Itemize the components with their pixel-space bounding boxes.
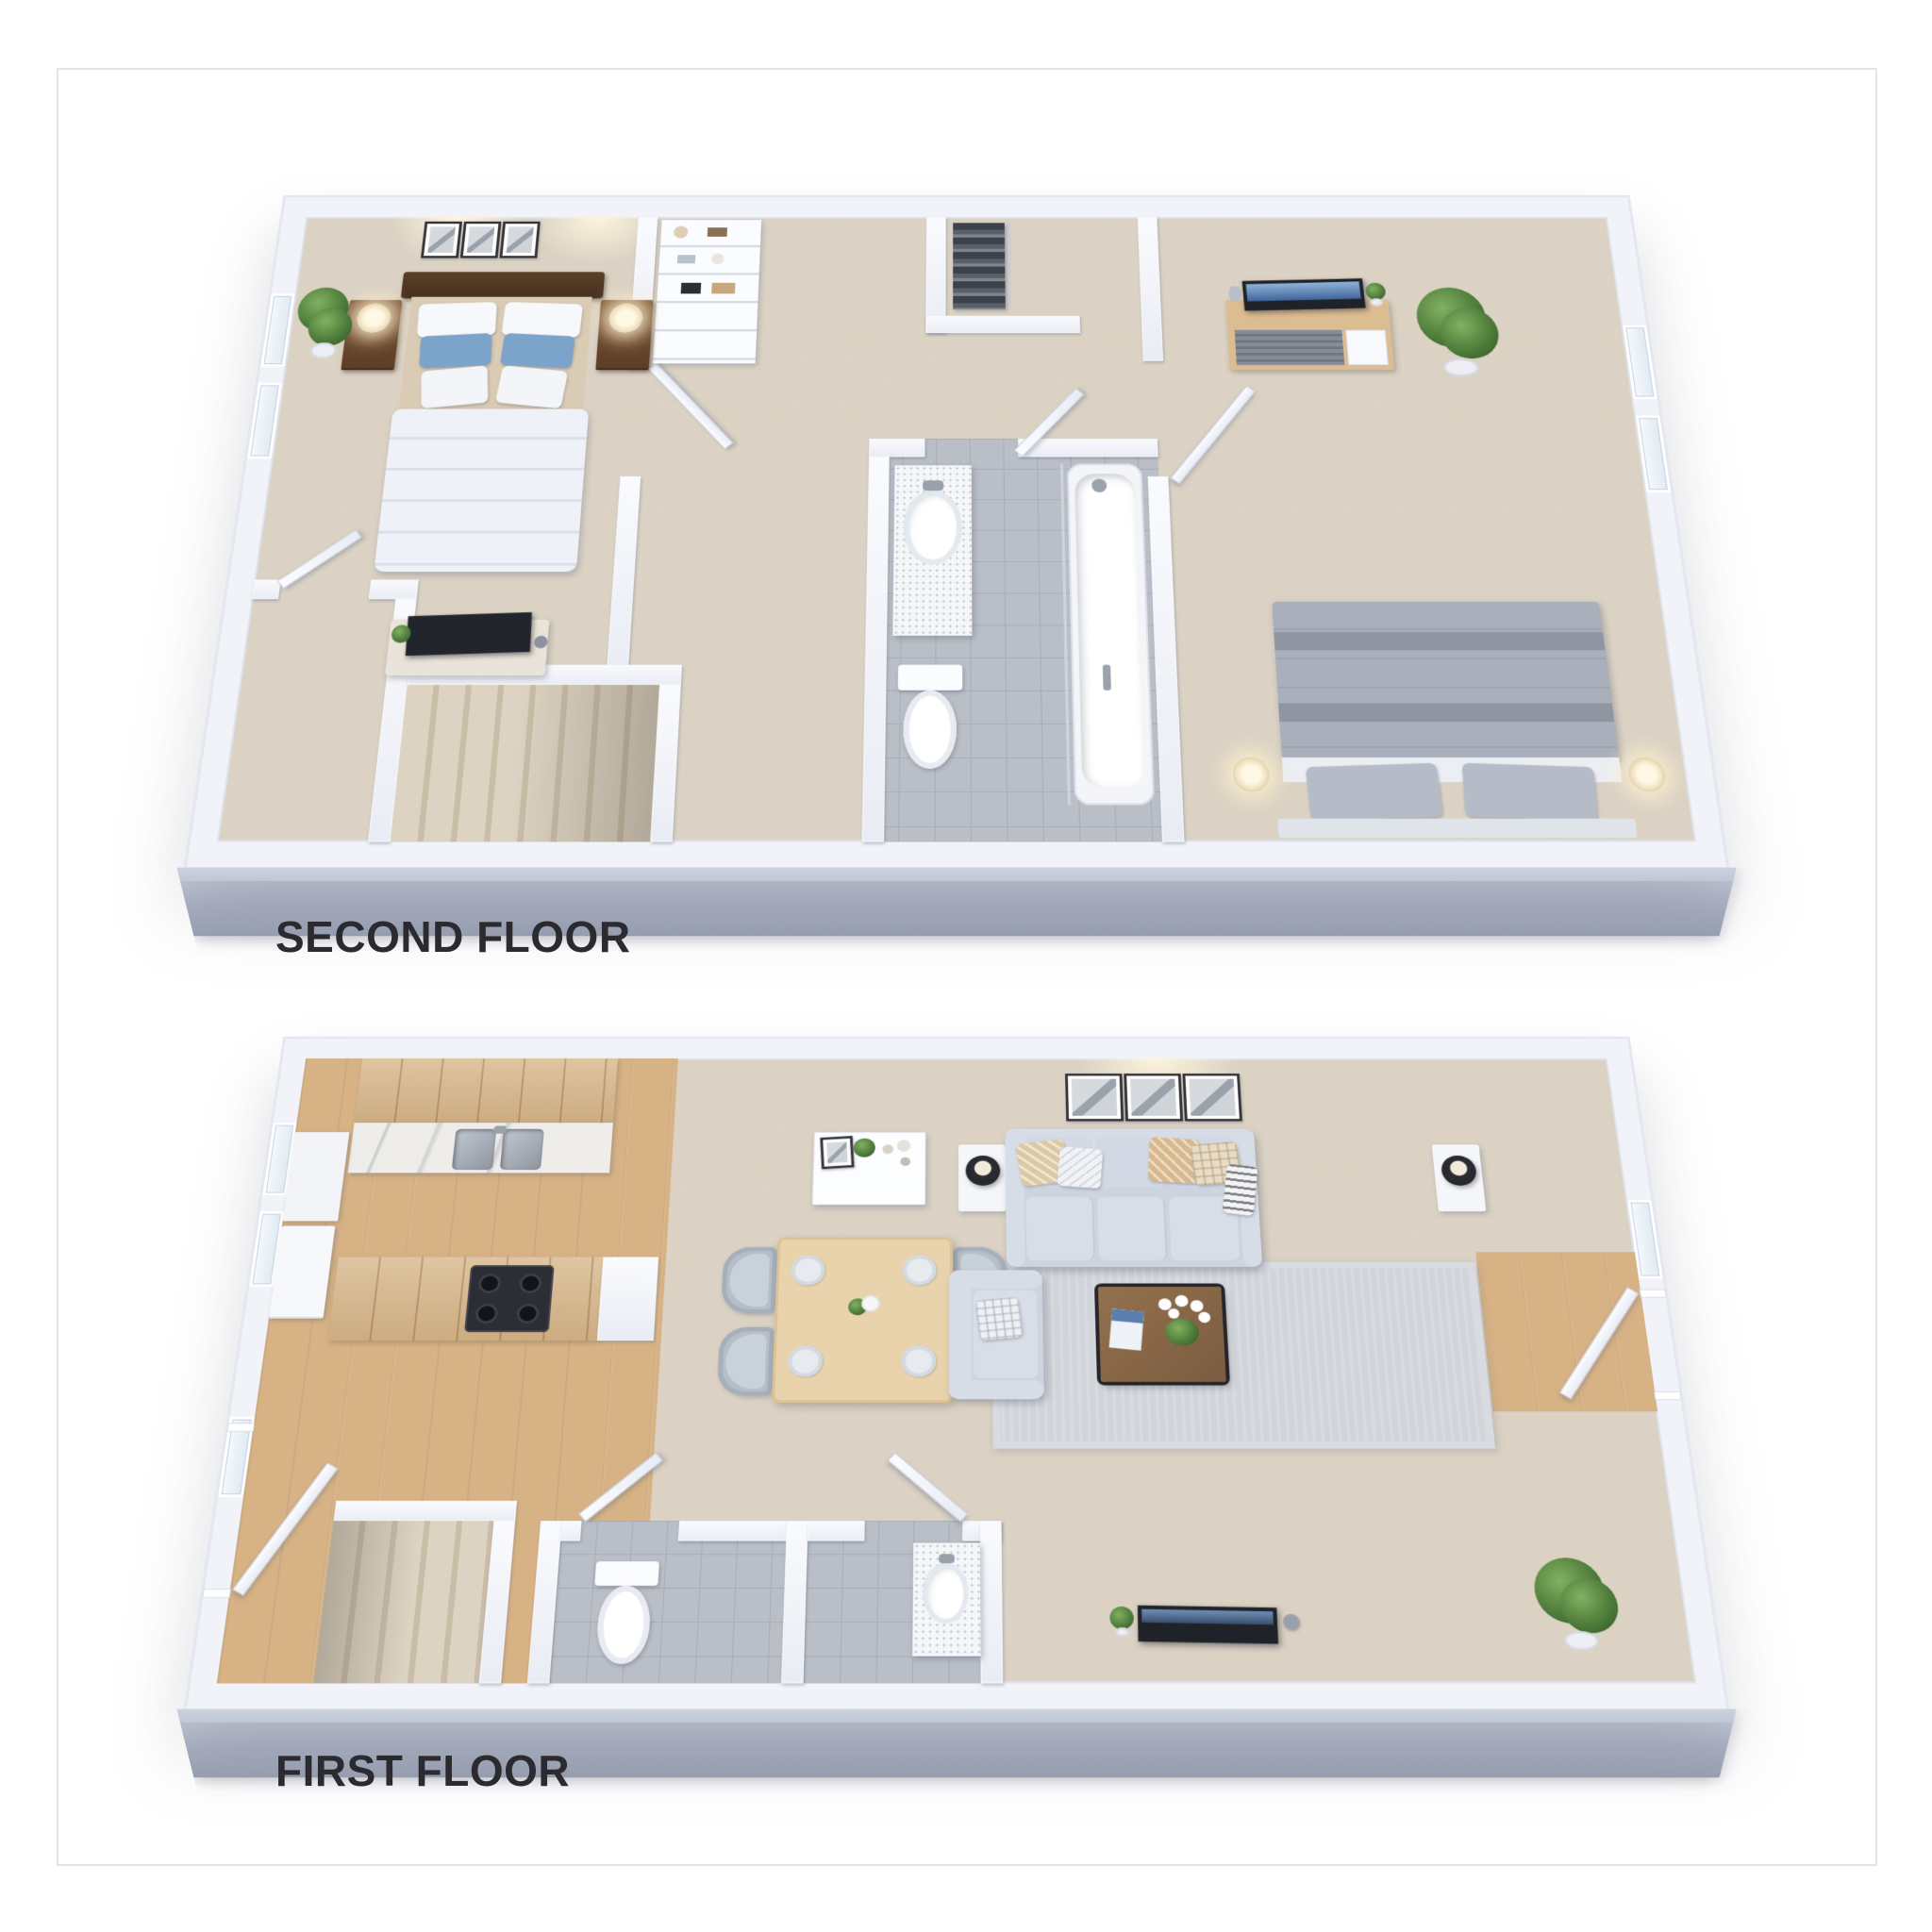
decor-books	[677, 255, 695, 263]
door-jamb	[1655, 1392, 1680, 1399]
bedroom2-door	[1171, 386, 1256, 485]
plant-foliage	[1557, 1578, 1621, 1633]
vanity-sink	[923, 1563, 969, 1624]
closet-wall	[368, 599, 417, 841]
wall-art-content	[427, 226, 456, 252]
upper-cabinets	[354, 1058, 618, 1123]
floor-plan-image: SECOND FLOOR	[0, 0, 1932, 1932]
decor-vase	[882, 1144, 893, 1154]
island-return-wall	[597, 1257, 658, 1341]
speaker	[534, 636, 548, 648]
bedroom2-wall	[1148, 476, 1185, 842]
sink-faucet	[923, 480, 943, 491]
burner	[516, 1304, 541, 1324]
armchair-arm	[949, 1270, 1042, 1288]
plant-pot	[1563, 1631, 1600, 1650]
bed-cushion-white	[495, 365, 568, 408]
bed-cushion-white	[421, 365, 488, 408]
staircase-up	[313, 1521, 493, 1683]
wall-art-figure	[499, 222, 540, 258]
bathroom-vanity	[892, 465, 972, 636]
window	[1636, 415, 1672, 491]
decor-vase	[900, 1158, 910, 1166]
hall-shelving-unit	[653, 220, 761, 363]
duvet-stripe	[1278, 703, 1614, 722]
bathroom-wall	[869, 439, 924, 457]
powder-room-divider-wall	[781, 1521, 808, 1683]
powder-room-wall	[527, 1521, 562, 1683]
tv-screen	[1141, 1609, 1274, 1624]
tub-drain-faucet	[1091, 479, 1107, 492]
master-bedroom-wall	[607, 476, 641, 669]
closet-wall	[369, 579, 419, 599]
burner	[475, 1304, 499, 1324]
closet-door	[277, 529, 362, 589]
magazine	[1109, 1308, 1144, 1350]
table-centerpiece	[846, 1295, 882, 1322]
bathroom-wall	[862, 457, 890, 841]
decor-plate	[711, 254, 724, 264]
bed-headboard	[401, 272, 605, 298]
bedroom2-wall	[1138, 217, 1163, 361]
stair-side-wall	[479, 1521, 516, 1683]
plant-foliage	[1438, 308, 1502, 358]
armchair	[949, 1270, 1044, 1399]
area-rug	[991, 1262, 1495, 1449]
bathroom-wall	[1018, 439, 1158, 457]
armchair-arm	[949, 1380, 1044, 1399]
dinner-plate	[902, 1346, 936, 1377]
decor-box	[708, 227, 727, 237]
wall-art	[1065, 1074, 1124, 1121]
bathtub-basin	[1074, 474, 1146, 788]
throw-pillow-striped	[1223, 1163, 1258, 1216]
wall-art-butterfly	[421, 222, 462, 258]
window	[247, 383, 282, 458]
wall-art	[1124, 1074, 1183, 1121]
tv-living-room	[1138, 1606, 1278, 1644]
second-floor-plan	[187, 197, 1726, 867]
potted-plant	[289, 284, 361, 363]
bed2-headboard	[1277, 819, 1637, 839]
sideboard	[812, 1132, 926, 1205]
toilet-tank	[898, 665, 962, 691]
wall-art-script	[460, 222, 502, 258]
staircase-down	[391, 685, 660, 842]
tv-screen	[1246, 281, 1361, 301]
vanity-sink	[903, 491, 962, 565]
closet-wall	[251, 579, 280, 599]
sideboard-plant	[854, 1139, 877, 1159]
throw-pillow	[974, 1296, 1023, 1341]
toilet-room-tile	[549, 1521, 787, 1683]
bed-pillow-white	[501, 302, 583, 338]
powder-room-wall	[962, 1521, 1002, 1541]
first-floor-plan	[187, 1039, 1726, 1708]
bed2-duvet	[1272, 602, 1619, 761]
decor-vase	[897, 1140, 911, 1151]
bedside-lamp	[1627, 758, 1668, 791]
stair-side-wall	[650, 685, 681, 842]
console-slat-drawers	[1235, 330, 1345, 365]
small-plant	[1365, 283, 1389, 308]
first-floor-tilt	[187, 1039, 1726, 1708]
kitchen-appliance-counter	[283, 1132, 350, 1221]
burner	[477, 1274, 502, 1293]
master-bedroom-door	[648, 362, 734, 449]
powder-room-wall	[980, 1521, 1003, 1683]
first-floor-label: FIRST FLOOR	[275, 1745, 570, 1796]
tall-potted-plant	[1410, 286, 1507, 378]
throw-pillow-white	[1057, 1146, 1103, 1189]
small-plant	[390, 625, 412, 650]
coffee-table	[1098, 1287, 1226, 1382]
stair-rail-wall	[408, 665, 682, 685]
sink-room-tile	[804, 1521, 1004, 1683]
toilet-tank	[594, 1561, 659, 1586]
dinner-plate	[788, 1346, 823, 1377]
door-jamb	[203, 1590, 229, 1597]
door-jamb	[227, 1424, 253, 1430]
bed2-pillow	[1462, 763, 1598, 821]
kitchen-faucet	[493, 1125, 507, 1133]
shower-glass-panel	[1060, 464, 1071, 806]
decor-basket	[711, 283, 735, 294]
double-sink	[452, 1129, 544, 1170]
decor-vase	[1228, 286, 1241, 302]
entry-door	[232, 1462, 339, 1596]
door-jamb	[1641, 1291, 1666, 1297]
bed2-pillow	[1306, 763, 1443, 821]
speaker	[1283, 1614, 1300, 1629]
kitchen-island	[327, 1257, 603, 1341]
dining-table	[772, 1238, 953, 1403]
entry-wood-floor	[1476, 1252, 1658, 1411]
sink-bowl	[500, 1129, 544, 1170]
bathtub	[1067, 464, 1155, 806]
tv-plant	[1109, 1607, 1137, 1641]
second-floor-tilt	[187, 197, 1726, 867]
powder-room-wall	[560, 1521, 581, 1541]
sink-room-door	[888, 1453, 969, 1523]
dinner-plate	[791, 1256, 824, 1286]
decor-box-dark	[681, 283, 702, 294]
dinner-plate	[903, 1256, 937, 1286]
staircase-shading	[313, 1521, 493, 1683]
bed-pillow-blue	[419, 333, 491, 368]
bed-duvet	[374, 408, 589, 572]
tv-dresser	[385, 620, 549, 675]
console-door	[1345, 330, 1389, 365]
toilet-bowl	[903, 691, 957, 769]
closet-rail	[1008, 223, 1012, 309]
powder-room-wall	[678, 1521, 787, 1541]
cooktop	[464, 1265, 555, 1332]
bedside-lamp	[1232, 758, 1270, 791]
hanging-clothes	[953, 223, 1006, 309]
stair-rail-wall	[334, 1501, 517, 1521]
powder-room-wall	[808, 1521, 865, 1541]
sofa-seat-cushion	[1097, 1197, 1168, 1260]
second-floor-label: SECOND FLOOR	[275, 911, 631, 962]
dining-chair	[717, 1327, 774, 1396]
kitchen-counter	[348, 1123, 613, 1173]
first-floor-scene	[240, 983, 1674, 1832]
sofa	[1006, 1129, 1263, 1267]
wall-art-content	[507, 226, 534, 252]
bed2-sheet	[1282, 758, 1623, 782]
bed-pillow-white	[417, 302, 497, 338]
powder-vanity	[912, 1543, 980, 1657]
duvet-stripe	[1274, 632, 1605, 650]
plant-pot	[1442, 358, 1479, 376]
plant-pot	[309, 342, 337, 358]
second-floor-scene	[240, 142, 1674, 991]
staircase-shading	[391, 685, 660, 842]
sideboard-frame	[820, 1136, 854, 1169]
shower-handle	[1103, 665, 1111, 691]
armchair-back	[949, 1270, 972, 1399]
plant-foliage	[1531, 1557, 1608, 1624]
window	[1623, 325, 1657, 399]
bed-pillow-blue	[500, 333, 575, 368]
walk-in-closet-wall	[925, 316, 1080, 333]
sink-faucet	[939, 1554, 955, 1563]
burner	[519, 1274, 543, 1293]
corner-potted-plant	[1529, 1556, 1628, 1654]
sink-bowl	[452, 1129, 497, 1170]
decor-bowl	[674, 226, 689, 239]
dining-chair	[721, 1247, 777, 1313]
tv-master-bedroom	[406, 612, 532, 656]
toilet-room-door	[578, 1453, 663, 1523]
black-table-lamp	[966, 1156, 1001, 1186]
toilet-bowl	[595, 1586, 652, 1664]
sofa-seat-cushion	[1026, 1197, 1096, 1260]
tv-bedroom2	[1242, 278, 1366, 310]
wall-art-content	[467, 226, 494, 252]
orchid-arrangement	[1157, 1297, 1213, 1353]
wall-art	[1182, 1074, 1241, 1121]
